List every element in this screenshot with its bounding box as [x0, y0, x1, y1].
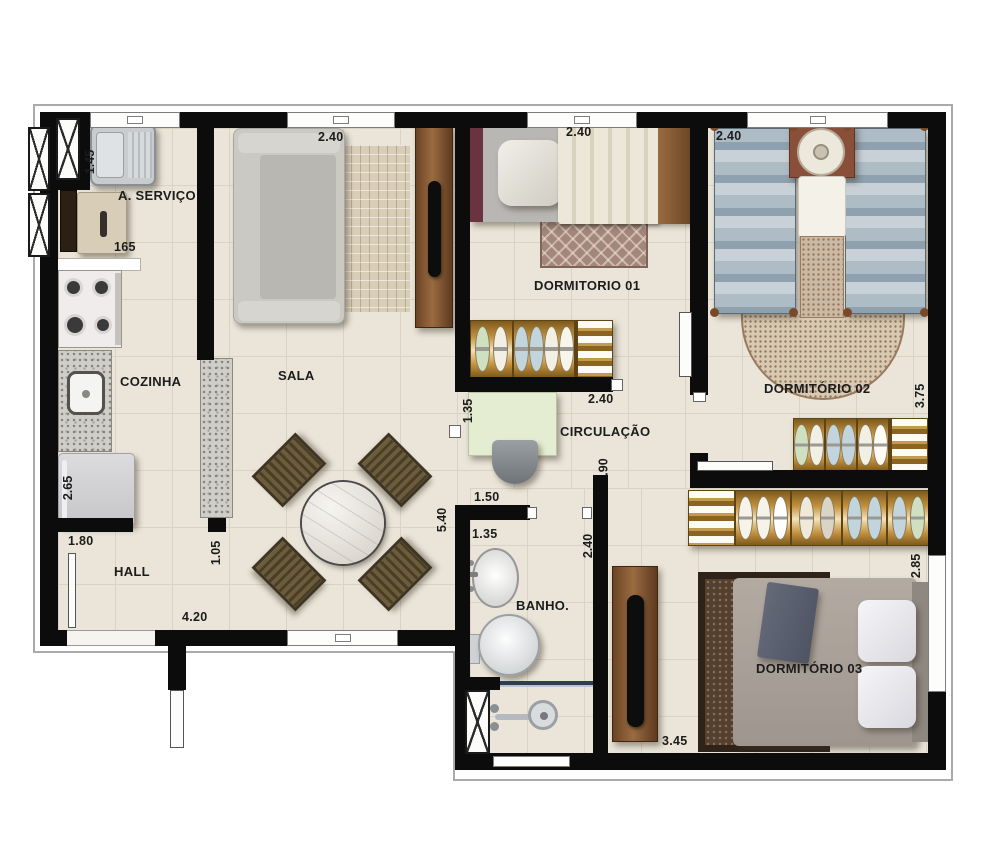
room-label-dorm3: DORMITÓRIO 03: [756, 661, 862, 676]
bed2-post: [789, 308, 798, 317]
dim-sala-window: 2.40: [318, 130, 344, 144]
bed1-pillow: [498, 140, 562, 206]
door-leaf: [68, 553, 76, 628]
clothes-item: [841, 424, 856, 467]
clothes-item: [493, 326, 508, 372]
dim-hall-opening: 1.80: [68, 534, 94, 548]
wardrobe-dorm3: [688, 490, 930, 546]
door-frame: [693, 392, 706, 402]
dim-desk-nook: 1.35: [460, 390, 476, 432]
wardrobe-section: [826, 419, 858, 471]
burner: [95, 281, 108, 294]
plan-outline: [33, 651, 455, 653]
clothes-item: [559, 326, 574, 372]
bed-dorm1: [470, 126, 692, 222]
dorm1-door-leaf: [679, 312, 692, 377]
clothes-item: [910, 496, 925, 540]
tv-panel-dorm3: [612, 566, 658, 742]
shower-knob: [490, 722, 499, 731]
tank-ridges: [128, 132, 152, 178]
clothes-item: [544, 326, 559, 372]
clothes-item: [773, 496, 788, 540]
wardrobe-shelves: [576, 321, 612, 377]
shower-knob: [490, 704, 499, 713]
window: [287, 630, 398, 646]
window: [287, 112, 395, 128]
door-frame: [527, 507, 537, 519]
wall: [40, 630, 67, 646]
clothes-item: [475, 326, 490, 372]
plan-outline: [951, 104, 953, 781]
dim-dorm1-bottom: 2.40: [588, 392, 614, 406]
rug-dorm1: [540, 220, 648, 268]
clothes-item: [794, 424, 809, 467]
wardrobe-section: [514, 321, 576, 377]
floor-plan: A. SERVIÇO COZINHA SALA HALL DORMITORIO …: [0, 0, 990, 866]
bed1-footboard: [658, 124, 692, 224]
shower-head: [528, 700, 558, 730]
dim-servico-width: 165: [114, 240, 136, 254]
burner: [97, 319, 109, 331]
tv-panel-sala: [415, 124, 453, 328]
bed2-runner-rug: [800, 236, 844, 318]
bed3-pillow: [858, 600, 916, 662]
shaft-box: [28, 193, 50, 257]
tank-basin: [96, 132, 124, 178]
wardrobe-section: [736, 491, 793, 545]
entry-opening: [67, 630, 155, 646]
room-label-dorm1: DORMITORIO 01: [534, 278, 640, 293]
window-mullion: [127, 116, 143, 124]
dim-cozinha-length: 2.65: [60, 466, 76, 510]
wardrobe-section: [792, 491, 843, 545]
wall: [455, 112, 470, 390]
room-label-hall: HALL: [114, 564, 150, 579]
wall: [155, 630, 287, 646]
plan-outline: [33, 104, 953, 106]
bed2-post: [843, 308, 852, 317]
dim-dorm2-width: 2.40: [716, 129, 742, 143]
clothes-item: [809, 424, 824, 467]
laundry-tank: [90, 124, 156, 186]
bed1-headboard: [470, 126, 483, 222]
dim-sala-length: 5.40: [434, 498, 450, 542]
dim-dorm2-length: 3.75: [912, 374, 928, 418]
clothes-item: [858, 424, 873, 467]
bed2-quilt-right: [845, 128, 926, 314]
wall: [197, 128, 214, 360]
window-mullion: [335, 634, 351, 642]
dim-banho-width: 1.35: [472, 527, 498, 541]
clothes-item: [826, 424, 841, 467]
wall: [690, 112, 708, 395]
wall: [455, 377, 613, 392]
stove: [58, 270, 122, 348]
window-mullion: [810, 116, 826, 124]
bed3-throw: [757, 582, 819, 664]
washer-door: [100, 211, 107, 237]
sofa: [233, 128, 345, 324]
stove-controls: [115, 273, 121, 345]
clothes-item: [756, 496, 771, 540]
shower-head-center: [540, 712, 548, 720]
room-label-cozinha: COZINHA: [120, 374, 181, 389]
bed3-pillow: [858, 666, 916, 728]
dim-dorm3-length: 2.85: [908, 544, 924, 588]
door-frame: [582, 507, 592, 519]
bed2-lamp-center: [813, 144, 829, 160]
wall: [40, 518, 133, 532]
bed2-post: [710, 308, 719, 317]
wall: [455, 505, 530, 520]
burner: [67, 317, 83, 333]
tv-screen: [627, 595, 644, 727]
wardrobe-dorm1: [470, 320, 613, 378]
window: [747, 112, 888, 128]
window-mullion: [333, 116, 349, 124]
clothes-item: [799, 496, 814, 540]
burner: [67, 281, 80, 294]
dim-counter-length: 1.05: [208, 532, 224, 574]
utility-cabinet: [60, 190, 77, 252]
tv-screen: [428, 181, 441, 277]
clothes-item: [820, 496, 835, 540]
wardrobe-section: [888, 491, 929, 545]
clothes-item: [529, 326, 544, 372]
desk-chair: [492, 440, 538, 484]
dim-hall-width: 4.20: [182, 610, 208, 624]
wall: [455, 677, 500, 690]
shower-glass-rail: [500, 685, 593, 687]
clothes-item: [892, 496, 907, 540]
window: [928, 555, 946, 692]
dim-dorm3-width: 3.45: [662, 734, 688, 748]
bed1-duvet: [558, 124, 660, 224]
dim-banho-door: 1.50: [474, 490, 500, 504]
bed2-quilt-left: [714, 128, 796, 314]
sofa-arm: [238, 301, 340, 321]
window: [90, 112, 180, 128]
wall: [690, 470, 928, 488]
dim-dorm1-top: 2.40: [566, 125, 592, 139]
wall: [208, 518, 226, 532]
clothes-item: [867, 496, 882, 540]
wardrobe-shelves: [689, 491, 736, 545]
wardrobe-section: [471, 321, 514, 377]
wardrobe-section: [794, 419, 826, 471]
dim-servico-depth: 1.45: [82, 140, 98, 184]
window: [493, 756, 570, 767]
wall: [180, 112, 287, 128]
dining-table: [302, 482, 384, 564]
shaft-box: [465, 690, 490, 754]
wall: [168, 646, 186, 690]
sink-drain: [82, 390, 90, 398]
wardrobe-dorm2: [793, 418, 928, 472]
door-frame: [611, 379, 623, 391]
toilet: [478, 614, 540, 676]
plan-outline: [453, 779, 953, 781]
room-label-banho: BANHO.: [516, 598, 569, 613]
sofa-seat: [260, 155, 336, 299]
clothes-item: [738, 496, 753, 540]
bed2-runner-white: [798, 176, 846, 238]
dim-circ-opening: .90: [596, 448, 612, 486]
dim-banho-wall: 2.40: [580, 524, 596, 568]
dorm2-door-leaf: [697, 461, 773, 471]
wardrobe-section: [843, 491, 888, 545]
room-label-sala: SALA: [278, 368, 315, 383]
room-label-servico: A. SERVIÇO: [118, 188, 196, 203]
room-label-dorm2: DORMITÓRIO 02: [764, 381, 870, 396]
window-mullion: [574, 116, 590, 124]
clothes-item: [514, 326, 529, 372]
counter-peninsula: [200, 358, 233, 518]
clothes-item: [847, 496, 862, 540]
clothes-item: [873, 424, 888, 467]
entry-door-leaf: [170, 690, 184, 748]
wardrobe-section: [858, 419, 890, 471]
room-label-circulacao: CIRCULAÇÃO: [560, 424, 650, 439]
wall: [928, 112, 946, 555]
wall: [593, 475, 608, 753]
shaft-box: [28, 127, 50, 191]
bed2-lamp: [797, 128, 845, 176]
shaft-box: [56, 118, 80, 180]
kitchen-counter: [58, 350, 112, 452]
wardrobe-shelves: [890, 419, 927, 471]
bathroom-sink: [472, 548, 519, 608]
